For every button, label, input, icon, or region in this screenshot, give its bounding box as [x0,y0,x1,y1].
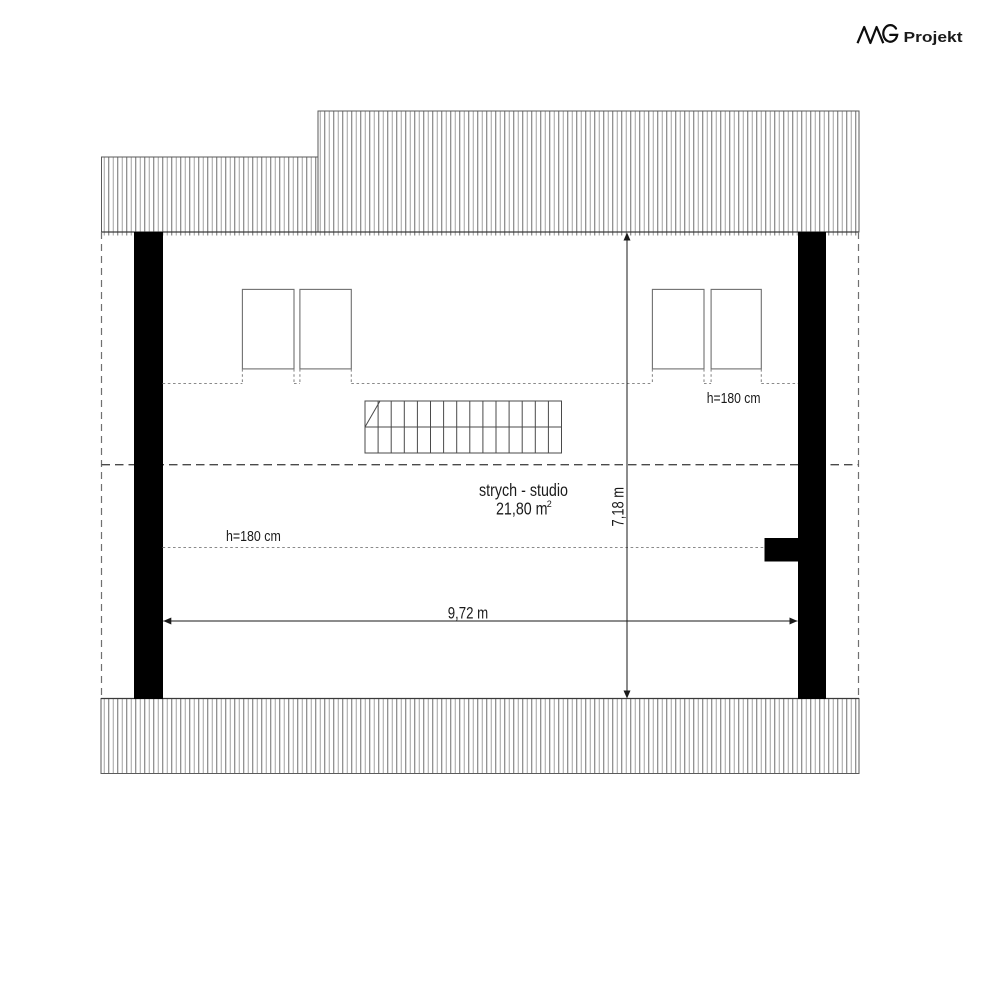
svg-text:strych - studio: strych - studio [479,480,568,500]
svg-text:h=180 cm: h=180 cm [226,529,281,545]
svg-text:h=180 cm: h=180 cm [707,391,761,407]
svg-text:Projekt: Projekt [904,30,963,46]
svg-text:2: 2 [547,499,552,509]
svg-text:21,80 m: 21,80 m [496,499,548,519]
svg-text:9,72 m: 9,72 m [448,604,489,622]
svg-text:7,18 m: 7,18 m [610,487,628,527]
